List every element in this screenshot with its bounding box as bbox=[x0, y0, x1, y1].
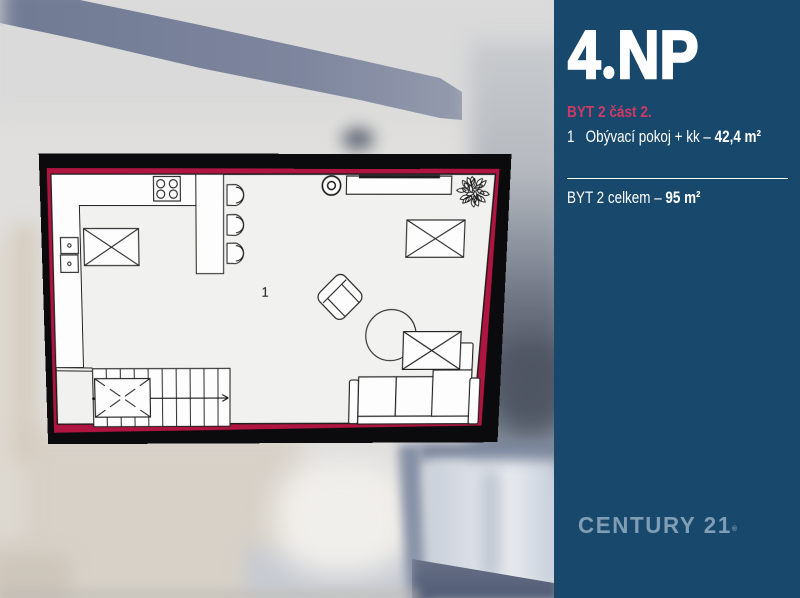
svg-text:1: 1 bbox=[261, 284, 269, 299]
